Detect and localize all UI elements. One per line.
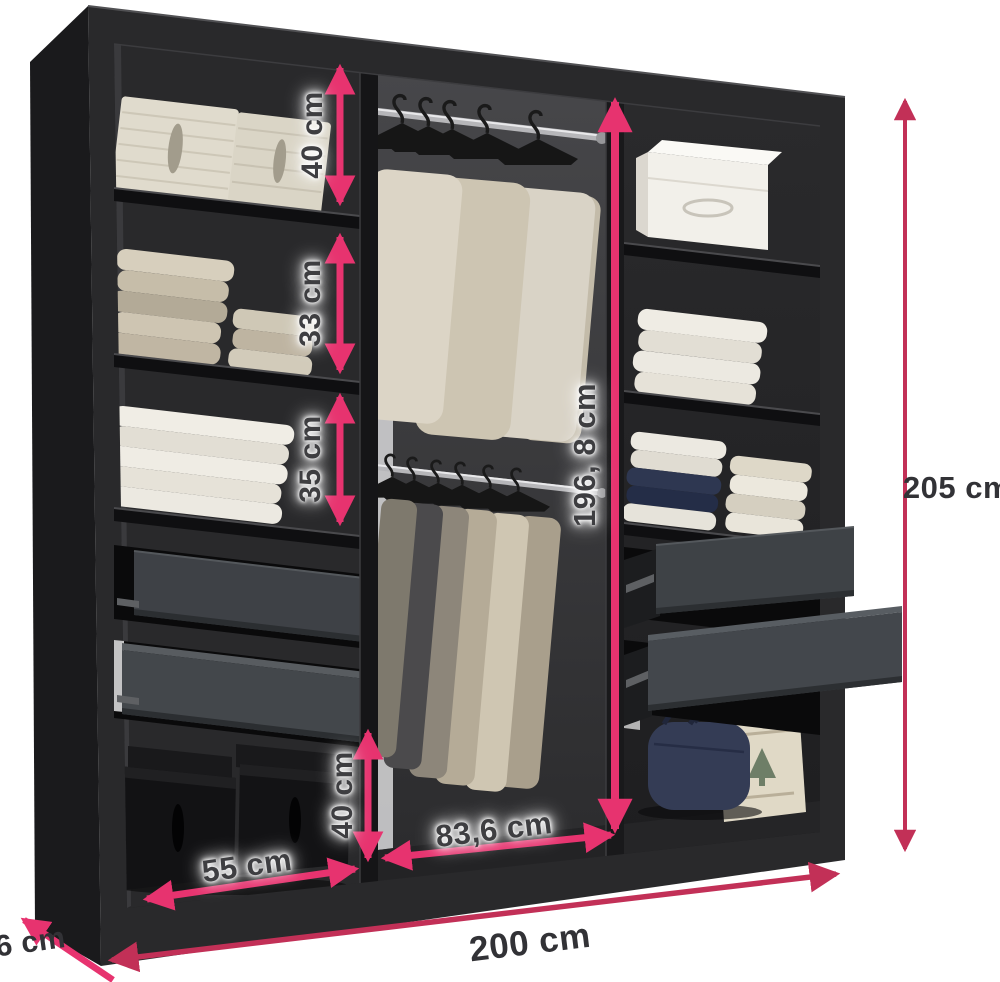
folded-knitwear-stack bbox=[106, 248, 235, 366]
folded-clothes-stack bbox=[629, 308, 768, 406]
dim-label-lower-shelf-height: 35 cm bbox=[294, 415, 328, 503]
wardrobe-diagram: 40 cm 33 cm 35 cm 40 cm 196, 8 cm 55 cm … bbox=[0, 0, 1000, 982]
dim-label-bottom-compartment-height: 40 cm bbox=[326, 751, 360, 839]
dim-label-hanging-space-height: 196, 8 cm bbox=[567, 383, 603, 527]
right-column bbox=[622, 103, 902, 854]
dim-label-total-height: 205 cm bbox=[903, 470, 1000, 506]
hanging-clothes bbox=[350, 168, 602, 444]
white-storage-box bbox=[636, 140, 782, 250]
folded-clothes-stack bbox=[103, 405, 295, 525]
dim-label-top-shelf-height: 40 cm bbox=[296, 91, 330, 179]
folded-clothes-stack bbox=[722, 455, 812, 540]
dim-label-middle-shelf-height: 33 cm bbox=[294, 259, 328, 347]
hanging-trousers bbox=[360, 498, 562, 793]
folded-clothes-stack bbox=[622, 431, 728, 531]
